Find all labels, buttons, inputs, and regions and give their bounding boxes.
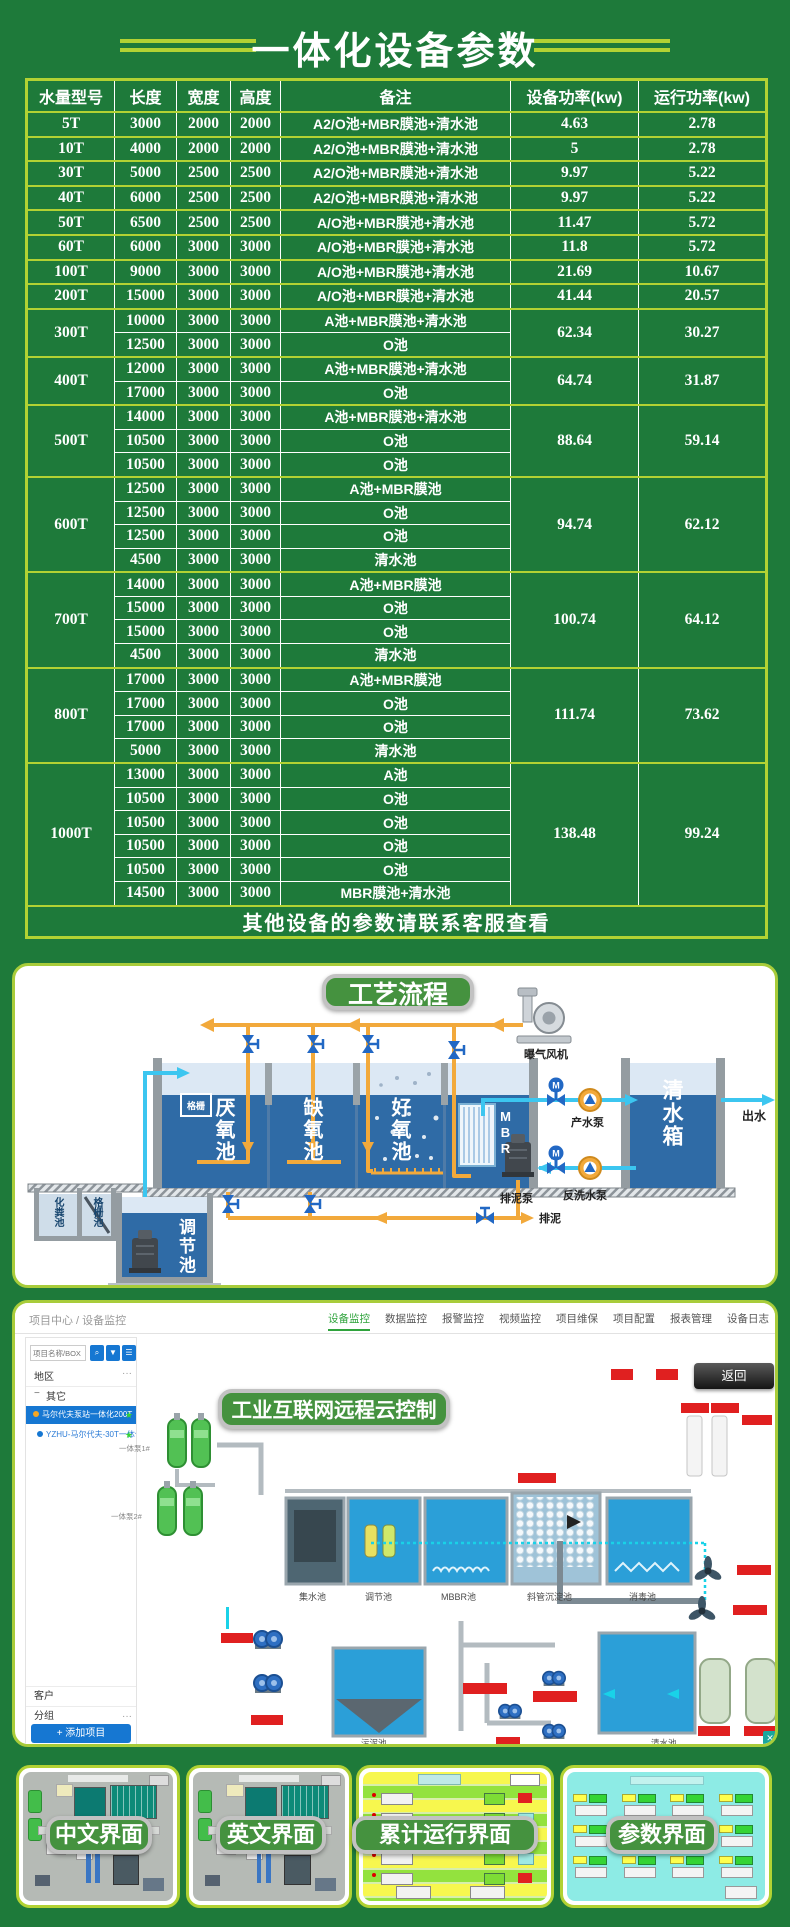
decor [198,1790,212,1813]
table-cell: A池 [281,763,511,787]
table-cell: 94.74 [511,477,639,572]
table-cell: 3000 [177,620,231,644]
table-row: 500T1400030003000A池+MBR膜池+清水池88.6459.14 [27,405,767,429]
alarm-label-chip [251,1715,283,1725]
table-cell: 10500 [115,429,177,453]
decor [622,1856,663,1880]
table-cell: 10500 [115,453,177,477]
decor [484,1853,504,1865]
decor [575,1836,607,1847]
decor [266,1852,271,1883]
table-cell: O池 [281,501,511,525]
decor [575,1805,607,1816]
table-cell: 3000 [177,787,231,811]
table-cell: O池 [281,692,511,716]
table-cell: 2.78 [639,137,767,162]
table-cell: 111.74 [511,668,639,763]
add-project-button[interactable]: + 添加项目 [31,1724,131,1743]
table-cell: 3000 [177,739,231,763]
decor [245,1787,277,1817]
table-cell: O池 [281,453,511,477]
table-cell: 3000 [177,477,231,501]
table-cell: 2500 [231,186,281,211]
badge-cumulative-ui: 累计运行界面 [352,1816,538,1854]
decor [381,1853,412,1865]
table-cell: 2500 [231,161,281,186]
table-cell: 3000 [231,715,281,739]
table-cell: 15000 [115,284,177,309]
decor [484,1873,504,1885]
table-cell: 4000 [115,137,177,162]
label-regulating-tank: 调节池 [177,1218,194,1275]
table-cell: O池 [281,525,511,549]
table-cell: 3000 [177,235,231,260]
table-cell: 300T [27,309,115,357]
table-cell: 3000 [177,572,231,596]
table-cell: 3000 [231,858,281,882]
table-cell: 40T [27,186,115,211]
table-cell: 3000 [231,381,281,405]
decor [672,1805,704,1816]
table-cell: 3000 [231,309,281,333]
back-button[interactable]: 返回 [694,1363,774,1389]
decor [670,1856,711,1880]
table-row: 400T1200030003000A池+MBR膜池+清水池64.7431.87 [27,357,767,381]
table-cell: 3000 [231,572,281,596]
table-cell: 5.72 [639,210,767,235]
table-cell: 14000 [115,405,177,429]
table-header-row: 水量型号 长度 宽度 高度 备注 设备功率(kw) 运行功率(kw) [27,80,767,113]
table-header-cell: 高度 [231,80,281,113]
table-cell: 30T [27,161,115,186]
table-cell: 20.57 [639,284,767,309]
table-cell: 3000 [231,235,281,260]
table-cell: 3000 [177,858,231,882]
table-cell: 3000 [231,787,281,811]
tank-label: 调节池 [365,1590,392,1603]
decor [622,1794,663,1818]
table-cell: A/O池+MBR膜池+清水池 [281,284,511,309]
table-cell: A/O池+MBR膜池+清水池 [281,260,511,285]
table-row: 700T1400030003000A池+MBR膜池100.7464.12 [27,572,767,596]
equipment-params-table: 水量型号 长度 宽度 高度 备注 设备功率(kw) 运行功率(kw) 5T300… [25,78,768,939]
star-icon[interactable]: ★ [125,1406,133,1424]
table-cell: 3000 [231,620,281,644]
table-header-cell: 运行功率(kw) [639,80,767,113]
decor [638,1794,656,1803]
close-icon[interactable]: ✕ [763,1731,777,1745]
table-cell: 10000 [115,309,177,333]
table-cell: A/O池+MBR膜池+清水池 [281,235,511,260]
process-flow-panel: M [12,963,778,1288]
decor [315,1878,336,1891]
alarm-label-chip [681,1403,709,1413]
decor [719,1825,760,1849]
decor [589,1794,607,1803]
list-icon[interactable]: ☰ [122,1345,136,1361]
table-cell: O池 [281,596,511,620]
alarm-label-chip [496,1737,520,1747]
decor [573,1794,614,1818]
sidebar-item-project-selected[interactable]: 马尔代夫泵站一体化200T★ [26,1406,136,1424]
table-cell: 1000T [27,763,115,906]
table-cell: 3000 [177,405,231,429]
decor [396,1886,431,1900]
table-cell: 62.34 [511,309,639,357]
table-cell: 17000 [115,715,177,739]
table-cell: 2.78 [639,112,767,137]
table-cell: 3000 [177,453,231,477]
table-cell: 21.69 [511,260,639,285]
table-cell: 3000 [177,811,231,835]
table-cell: 4500 [115,644,177,668]
table-cell: 3000 [177,596,231,620]
table-cell: 2500 [177,186,231,211]
table-cell: 3000 [231,811,281,835]
table-cell: 5000 [115,739,177,763]
decor [372,1793,376,1797]
table-cell: 30.27 [639,309,767,357]
alarm-label-chip [698,1726,730,1736]
table-cell: 清水池 [281,739,511,763]
table-cell: 3000 [177,357,231,381]
table-cell: 14500 [115,882,177,906]
table-cell: 3000 [231,548,281,572]
label-blower: 曝气风机 [513,1046,579,1062]
label-aerobic-tank: 好氧池 [389,1097,409,1163]
table-row: 40T600025002500A2/O池+MBR膜池+清水池9.975.22 [27,186,767,211]
decor [573,1825,587,1833]
table-cell: 500T [27,405,115,477]
project-search-input[interactable] [30,1345,86,1361]
pump-label-1: 一体泵1# [119,1443,150,1454]
decor [510,1774,540,1786]
decor [74,1787,106,1817]
table-row: 800T1700030003000A池+MBR膜池111.7473.62 [27,668,767,692]
process-flow-badge: 工艺流程 [322,974,474,1010]
decor [725,1886,757,1900]
table-cell: 3000 [115,112,177,137]
decor [735,1856,753,1865]
table-cell: 3000 [177,260,231,285]
table-cell: 3000 [177,381,231,405]
table-cell: 3000 [231,477,281,501]
decor [589,1856,607,1865]
table-row: 30T500025002500A2/O池+MBR膜池+清水池9.975.22 [27,161,767,186]
table-cell: 60T [27,235,115,260]
table-cell: 10500 [115,858,177,882]
table-cell: 9000 [115,260,177,285]
decor [719,1825,733,1833]
table-cell: 3000 [177,548,231,572]
table-cell: 10500 [115,787,177,811]
table-cell: 12000 [115,357,177,381]
table-cell: 3000 [177,284,231,309]
table-cell: 4500 [115,548,177,572]
table-cell: 3000 [177,333,231,357]
decor [624,1805,656,1816]
decor [35,1875,50,1885]
table-cell: 800T [27,668,115,763]
table-cell: 2500 [177,161,231,186]
table-cell: 5.22 [639,186,767,211]
decor [670,1794,684,1802]
label-anoxic-tank: 缺氧池 [301,1097,321,1163]
decor [735,1825,753,1834]
table-cell: O池 [281,715,511,739]
decor [518,1873,533,1883]
table-cell: 11.47 [511,210,639,235]
table-cell: 64.74 [511,357,639,405]
decor [575,1867,607,1878]
table-cell: 17000 [115,668,177,692]
table-cell: 700T [27,572,115,667]
table-cell: 3000 [177,309,231,333]
table-header-cell: 设备功率(kw) [511,80,639,113]
pump-label-2: 一体泵2# [111,1511,142,1522]
decor [68,1775,128,1782]
table-cell: 2500 [177,210,231,235]
decor [239,1775,300,1782]
table-cell: 6000 [115,186,177,211]
table-cell: 41.44 [511,284,639,309]
table-cell: 3000 [231,501,281,525]
table-cell: 5000 [115,161,177,186]
table-row: 100T900030003000A/O池+MBR膜池+清水池21.6910.67 [27,260,767,285]
decor [719,1794,733,1802]
sludge-tank-label: 污泥池 [361,1737,387,1747]
alarm-label-chip [737,1565,771,1575]
table-cell: 3000 [177,668,231,692]
table-cell: O池 [281,811,511,835]
table-cell: 3000 [231,596,281,620]
decor [573,1856,587,1864]
clean-tank-label: 清水池 [651,1737,677,1747]
table-cell: 4.63 [511,112,639,137]
params-table-body: 5T300020002000A2/O池+MBR膜池+清水池4.632.7810T… [27,112,767,906]
table-cell: 3000 [177,525,231,549]
tank-label: 消毒池 [629,1590,656,1603]
table-cell: 3000 [231,333,281,357]
table-cell: A2/O池+MBR膜池+清水池 [281,161,511,186]
label-sludge-out: 排泥 [539,1210,561,1226]
decor [95,1852,100,1883]
alarm-label-chip [533,1691,577,1702]
decor [630,1776,703,1785]
label-outflow: 出水 [742,1107,766,1124]
table-cell: 3000 [231,739,281,763]
table-cell: 3000 [231,260,281,285]
star-icon[interactable]: ★ [125,1426,133,1444]
table-cell: O池 [281,381,511,405]
decor [719,1856,733,1864]
table-cell: O池 [281,858,511,882]
table-cell: 10.67 [639,260,767,285]
decor [281,1785,329,1819]
table-cell: 2000 [231,112,281,137]
table-cell: A池+MBR膜池+清水池 [281,405,511,429]
table-cell: 3000 [177,763,231,787]
table-cell: 3000 [231,763,281,787]
table-header-cell: 备注 [281,80,511,113]
table-cell: 5T [27,112,115,137]
decor [719,1856,760,1880]
label-grid-tank: 格栅池 [91,1197,101,1227]
label-anaerobic-tank: 厌氧池 [213,1097,233,1163]
filter-icon[interactable]: ▼ [106,1345,120,1361]
table-cell: 3000 [231,834,281,858]
table-cell: 3000 [231,453,281,477]
badge-params-ui: 参数界面 [606,1816,718,1854]
table-header-cell: 水量型号 [27,80,115,113]
iot-sidebar: ⌕ ▼ ☰ 地区 ··· −其它 马尔代夫泵站一体化200T★ YZHU-马尔代… [25,1337,137,1745]
alarm-label-chip [742,1415,772,1425]
alarm-label-chip [463,1683,507,1694]
table-cell: 10T [27,137,115,162]
table-header-cell: 长度 [115,80,177,113]
badge-english-ui: 英文界面 [216,1816,326,1854]
sidebar-item-project-2[interactable]: YZHU-马尔代夫-30T一体化设★ [26,1426,136,1444]
status-dot-icon [33,1411,39,1417]
table-cell: 100.74 [511,572,639,667]
table-cell: 100T [27,260,115,285]
table-cell: 600T [27,477,115,572]
decor [484,1793,504,1805]
decor [622,1856,636,1864]
table-cell: 5 [511,137,639,162]
table-cell: 2500 [231,210,281,235]
table-cell: 3000 [177,501,231,525]
table-header-cell: 宽度 [177,80,231,113]
table-cell: 17000 [115,381,177,405]
table-footer-note: 其他设备的参数请联系客服查看 [27,906,767,938]
table-cell: 10500 [115,834,177,858]
decor [735,1794,753,1803]
decor [284,1855,310,1885]
decor [518,1793,533,1803]
table-cell: 2000 [177,137,231,162]
decor [573,1856,614,1880]
decor [721,1867,753,1878]
table-cell: 3000 [231,357,281,381]
table-cell: 3000 [231,644,281,668]
alarm-label-chip [611,1369,633,1380]
table-cell: 88.64 [511,405,639,477]
table-cell: 3000 [231,405,281,429]
alarm-label-chip [711,1403,739,1413]
decor [589,1825,607,1834]
decor [721,1836,753,1847]
table-cell: 11.8 [511,235,639,260]
decor [624,1867,656,1878]
table-cell: 3000 [177,692,231,716]
decor [28,1790,42,1813]
table-cell: 59.14 [639,405,767,477]
table-cell: O池 [281,333,511,357]
table-cell: O池 [281,834,511,858]
table-cell: A池+MBR膜池+清水池 [281,309,511,333]
table-cell: 3000 [177,715,231,739]
table-cell: 清水池 [281,548,511,572]
table-cell: 3000 [231,429,281,453]
table-cell: 400T [27,357,115,405]
table-cell: 13000 [115,763,177,787]
customer-row[interactable]: 客户 [26,1686,136,1707]
search-icon[interactable]: ⌕ [90,1345,104,1361]
decor [143,1878,164,1891]
table-cell: 15000 [115,596,177,620]
table-cell: 138.48 [511,763,639,906]
table-cell: MBR膜池+清水池 [281,882,511,906]
decor [622,1794,636,1802]
table-row: 5T300020002000A2/O池+MBR膜池+清水池4.632.78 [27,112,767,137]
table-cell: A2/O池+MBR膜池+清水池 [281,186,511,211]
decor [670,1856,684,1864]
table-cell: O池 [281,620,511,644]
decor [670,1794,711,1818]
table-cell: 2000 [231,137,281,162]
alarm-label-chip [518,1473,556,1483]
table-row: 60T600030003000A/O池+MBR膜池+清水池11.85.72 [27,235,767,260]
decor [672,1867,704,1878]
decor [381,1873,412,1885]
label-septic-tank: 化粪池 [52,1197,62,1227]
alarm-label-chip [733,1605,767,1615]
decor [113,1855,139,1885]
table-cell: O池 [281,787,511,811]
table-cell: 62.12 [639,477,767,572]
tank-label: 集水池 [299,1590,326,1603]
decor [56,1784,73,1798]
more-icon[interactable]: ··· [122,1368,132,1379]
table-cell: 9.97 [511,186,639,211]
table-cell: 清水池 [281,644,511,668]
table-cell: A池+MBR膜池 [281,572,511,596]
table-cell: A2/O池+MBR膜池+清水池 [281,137,511,162]
table-row: 1000T1300030003000A池138.4899.24 [27,763,767,787]
table-cell: 3000 [231,525,281,549]
decor [686,1794,704,1803]
table-row: 200T1500030003000A/O池+MBR膜池+清水池41.4420.5… [27,284,767,309]
table-cell: 5.72 [639,235,767,260]
table-cell: 6500 [115,210,177,235]
table-cell: A池+MBR膜池 [281,477,511,501]
table-cell: 12500 [115,525,177,549]
label-clean-water-tank: 清水箱 [661,1079,682,1148]
alarm-label-chip [656,1369,678,1380]
table-cell: 15000 [115,620,177,644]
table-cell: A池+MBR膜池+清水池 [281,357,511,381]
tank-label: 斜管沉淀池 [527,1590,572,1603]
decor [226,1784,243,1798]
label-grid: 格栅 [181,1099,211,1112]
device-dot-icon [37,1431,43,1437]
tank-label: MBBR池 [441,1590,476,1603]
region-label: 地区 [34,1368,54,1383]
table-cell: 73.62 [639,668,767,763]
label-product-pump: 产水泵 [571,1114,604,1130]
table-cell: A/O池+MBR膜池+清水池 [281,210,511,235]
table-cell: 2000 [177,112,231,137]
decor [721,1805,753,1816]
table-cell: 14000 [115,572,177,596]
table-cell: 3000 [177,834,231,858]
alarm-label-chip [221,1633,253,1643]
iot-title-badge: 工业互联网远程云控制 [218,1389,450,1429]
decor [573,1794,587,1802]
table-cell: 12500 [115,477,177,501]
table-cell: 99.24 [639,763,767,906]
